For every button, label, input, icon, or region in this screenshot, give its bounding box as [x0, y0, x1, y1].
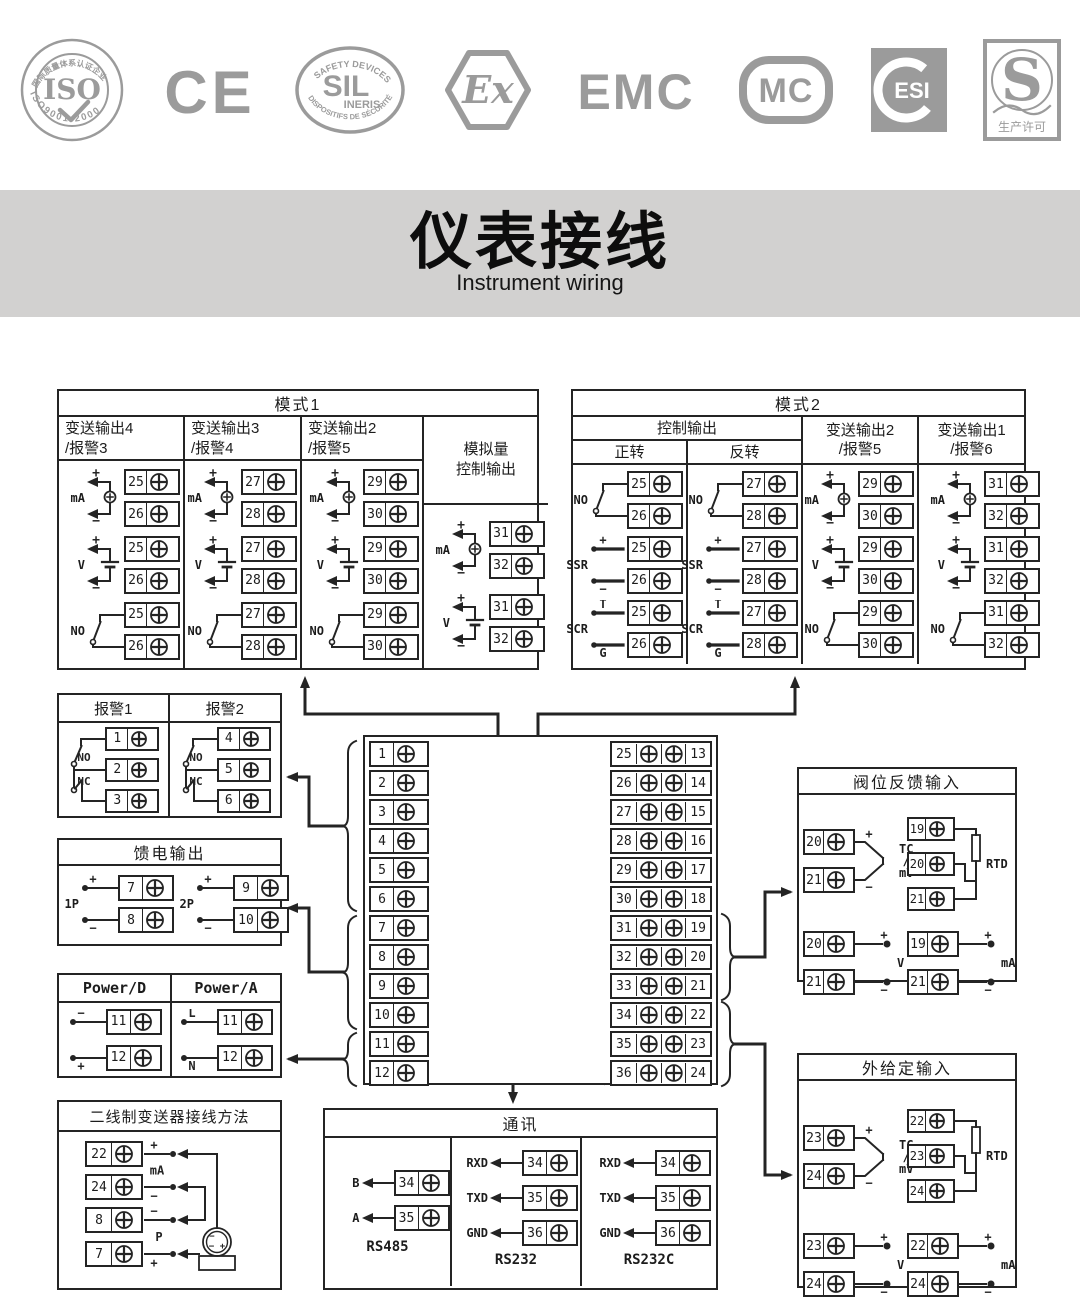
terminal: 21: [803, 969, 855, 995]
terminal: 30: [363, 568, 419, 594]
svg-text:生产许可: 生产许可: [998, 120, 1046, 134]
terminal-number: 32: [986, 505, 1007, 527]
terminal: 19: [907, 931, 959, 957]
mA-diagram: mA+−2930: [298, 469, 419, 527]
terminal: 21: [907, 887, 955, 911]
ma-label: mA: [298, 491, 324, 505]
v-label: V: [424, 616, 450, 630]
screw-terminal-icon: [928, 890, 946, 908]
screw-terminal-icon: [661, 860, 687, 880]
terminal-number: 25: [629, 538, 650, 560]
terminal-stack: 910: [233, 875, 289, 933]
twowire-title: 二线制变送器接线方法: [59, 1102, 280, 1132]
esi-logo-icon: ESI: [870, 45, 948, 135]
no-label: NO: [677, 493, 703, 507]
terminal-number: 31: [986, 538, 1007, 560]
terminal: 26: [124, 634, 180, 660]
terminal: 12: [106, 1045, 162, 1071]
rs485-label: RS485: [366, 1239, 408, 1255]
terminal-number: 23: [805, 1127, 824, 1149]
terminal-number: 1: [371, 743, 394, 765]
column-header: 模拟量 控制输出: [424, 417, 548, 505]
terminal-stack: 2526: [627, 536, 683, 594]
V-diagram: V+−3132: [919, 536, 1040, 594]
svg-text:−: −: [714, 582, 721, 594]
screw-terminal-icon: [266, 605, 286, 625]
lead-wiring-icon: +−: [80, 875, 118, 933]
no-label: NO: [793, 622, 819, 636]
svg-text:+: +: [331, 469, 339, 481]
screw-terminal-icon: [826, 1236, 846, 1256]
gnd-label: GND: [587, 1226, 621, 1240]
terminal-number: 7: [371, 917, 394, 939]
terminal-number: 31: [491, 596, 512, 618]
comm-title: 通讯: [325, 1110, 716, 1138]
terminal-stack: 456: [217, 727, 271, 813]
terminal: 29: [363, 536, 419, 562]
screw-terminal-icon: [661, 773, 687, 793]
screw-terminal-icon: [149, 472, 169, 492]
terminal: 5: [217, 758, 271, 782]
screw-terminal-icon: [826, 1166, 846, 1186]
feed-group: 2P+−910: [174, 875, 289, 933]
terminal: 3: [105, 789, 159, 813]
terminal-number: 24: [686, 1066, 710, 1081]
terminal-number: 2: [371, 772, 394, 794]
screw-terminal-icon: [130, 792, 148, 810]
svg-text:EMC: EMC: [577, 64, 694, 120]
svg-text:−: −: [209, 581, 217, 594]
terminal-block: 1234567891011122513261427152816291730183…: [363, 735, 718, 1085]
relay-no-nc-icon: NONC: [67, 726, 105, 814]
screw-terminal-icon: [636, 802, 661, 822]
terminal: 6: [369, 886, 429, 912]
SCR-diagram: SCRTG2728: [677, 600, 798, 658]
terminal-number: 17: [686, 863, 710, 878]
terminal: 5: [369, 857, 429, 883]
terminal: 30: [363, 634, 419, 660]
logo-ce: CE: [160, 53, 260, 127]
terminal: 29: [363, 469, 419, 495]
terminal: 11: [106, 1009, 162, 1035]
screw-terminal-icon: [1009, 635, 1029, 655]
left-arrow-icon: [621, 1186, 655, 1210]
screw-terminal-icon: [260, 910, 280, 930]
terminal: 20: [803, 931, 855, 957]
svg-text:−: −: [880, 983, 887, 995]
V-diagram: V+−3132: [424, 594, 545, 652]
terminal-number: 1: [107, 729, 128, 749]
terminal-number: 9: [371, 975, 394, 997]
screw-terminal-icon: [928, 1112, 946, 1130]
dot-input-group: 1921+−mA: [907, 931, 1015, 995]
terminal: 11: [217, 1009, 273, 1035]
terminal-number: 5: [371, 859, 394, 881]
terminal: 29: [858, 471, 914, 497]
screw-terminal-icon: [928, 1147, 946, 1165]
screw-terminal-icon: [130, 761, 148, 779]
svg-text:+: +: [865, 1125, 872, 1137]
valve-feedback-box: 阀位反馈输入 2021+−TC/mV192021RTD2021+−V1921+−…: [797, 767, 1017, 982]
terminal-number: 34: [657, 1152, 680, 1174]
terminal-row: 2513: [610, 741, 712, 767]
terminal: 26: [124, 501, 180, 527]
svg-text:+: +: [209, 469, 217, 481]
terminal: 6: [217, 789, 271, 813]
terminal-number: 13: [686, 747, 710, 762]
NO-wiring-icon: [704, 471, 742, 529]
terminal-row: 2715: [610, 799, 712, 825]
mA-diagram: mA+−3132: [919, 471, 1040, 529]
screw-terminal-icon: [661, 918, 687, 938]
power-box: Power/D Power/A −+1112 LN1112: [57, 973, 282, 1078]
logo-esi: ESI: [870, 45, 948, 135]
terminal: 12: [369, 1060, 429, 1086]
terminal-number: 21: [909, 971, 928, 993]
terminal: 21: [803, 867, 855, 893]
terminal-row: 3119: [610, 915, 712, 941]
terminal: 30: [858, 503, 914, 529]
page-title: 仪表接线: [410, 212, 670, 274]
terminal: 31: [489, 521, 545, 547]
screw-terminal-icon: [661, 1005, 687, 1025]
column-header: 正转: [573, 441, 688, 465]
terminal-number: 21: [805, 869, 824, 891]
left-arrow-icon: [488, 1186, 522, 1210]
terminal: 12: [217, 1045, 273, 1071]
terminal-number: 26: [126, 570, 147, 592]
screw-terminal-icon: [149, 637, 169, 657]
ex-logo-icon: Ex: [440, 40, 536, 140]
terminal-number: 12: [108, 1047, 131, 1069]
terminal-stack: 2021: [803, 931, 855, 995]
terminal: 27: [241, 469, 297, 495]
terminal-number: 29: [612, 863, 636, 878]
svg-text:N: N: [188, 1059, 195, 1071]
no-label: NO: [298, 624, 324, 638]
screw-terminal-icon: [260, 878, 280, 898]
terminal-number: 28: [612, 834, 636, 849]
terminal-number: 25: [126, 538, 147, 560]
terminal: 31: [984, 536, 1040, 562]
column-header: 变送输出4 /报警3: [59, 417, 183, 461]
svg-text:−: −: [865, 880, 872, 893]
screw-terminal-icon: [883, 474, 903, 494]
svg-text:INERIS: INERIS: [344, 99, 381, 111]
power-d-header: Power/D: [59, 975, 172, 1001]
terminal-row: 2614: [610, 770, 712, 796]
terminal: 27: [742, 536, 798, 562]
terminal: 1: [105, 727, 159, 751]
terminal-number: 15: [686, 805, 710, 820]
terminal-number: 30: [365, 570, 386, 592]
svg-text:G: G: [599, 646, 606, 658]
svg-text:+: +: [952, 471, 960, 483]
column-header: 变送输出1 /报警6: [919, 417, 1024, 465]
V-wiring-icon: +−: [86, 536, 124, 594]
svg-text:−: −: [150, 1189, 157, 1203]
terminal-number: 23: [805, 1235, 824, 1257]
left-arrow-icon: [621, 1221, 655, 1245]
screw-terminal-icon: [826, 1274, 846, 1294]
terminal-number: 35: [657, 1187, 680, 1209]
power-a-header: Power/A: [172, 975, 280, 1001]
screw-terminal-icon: [396, 918, 416, 938]
terminal: 2: [369, 770, 429, 796]
terminal: 28: [742, 568, 798, 594]
terminal-number: 12: [371, 1062, 394, 1084]
terminal: 35: [655, 1185, 711, 1211]
svg-text:NC: NC: [78, 775, 91, 788]
V-diagram: V+−2930: [298, 536, 419, 594]
screw-terminal-icon: [636, 947, 661, 967]
terminal-number: 21: [909, 889, 926, 909]
screw-terminal-icon: [767, 506, 787, 526]
screw-terminal-icon: [133, 1048, 153, 1068]
ssr-label: SSR: [562, 558, 588, 572]
mA-wiring-icon: +−: [203, 469, 241, 527]
svg-text:T: T: [599, 600, 606, 611]
terminal-number: 12: [219, 1047, 242, 1069]
terminal: 8: [118, 907, 174, 933]
terminal: 30: [858, 632, 914, 658]
screw-terminal-icon: [652, 603, 672, 623]
terminal: 25: [124, 536, 180, 562]
alarm-diagram: NONC456: [179, 726, 271, 814]
lead-wiring-icon: LN: [179, 1009, 217, 1071]
screw-terminal-icon: [826, 1128, 846, 1148]
terminal-number: 24: [909, 1181, 926, 1201]
screw-terminal-icon: [930, 1236, 950, 1256]
NO-diagram: NO2526: [562, 471, 683, 529]
comm-row: A35: [326, 1205, 450, 1231]
terminal-stack: 3132: [489, 521, 545, 579]
signal-wiring-icon: +−: [959, 931, 1001, 995]
comm-row: TXD35: [454, 1185, 578, 1211]
svg-text:+: +: [714, 536, 721, 547]
terminal-stack: 2526: [124, 536, 180, 594]
svg-text:CE: CE: [164, 59, 255, 126]
lead-wiring-icon: −+: [68, 1009, 106, 1071]
logo-ex: Ex: [440, 40, 536, 140]
terminal-row: 3321: [610, 973, 712, 999]
screw-terminal-icon: [767, 603, 787, 623]
ssr-label: SSR: [677, 558, 703, 572]
terminal: 35: [394, 1205, 450, 1231]
terminal-number: 18: [686, 892, 710, 907]
terminal-row: 3422: [610, 1002, 712, 1028]
SSR-wiring-icon: +−: [589, 536, 627, 594]
terminal-number: 32: [612, 950, 636, 965]
terminal-number: 5: [219, 760, 240, 780]
terminal-number: 27: [744, 473, 765, 495]
ma-label: mA: [1001, 1259, 1015, 1271]
lead-wiring-icon: +−: [195, 875, 233, 933]
screw-terminal-icon: [767, 539, 787, 559]
terminal: 27: [241, 536, 297, 562]
terminal-number: 30: [860, 505, 881, 527]
terminal: 24: [803, 1271, 855, 1297]
mA-wiring-icon: +−: [820, 471, 858, 529]
terminal: 26: [627, 503, 683, 529]
external-setpoint-box: 外给定输入 2324+−TC/mV222324RTD2324+−V2224+−m…: [797, 1053, 1017, 1288]
svg-text:−: −: [331, 514, 339, 527]
terminal-stack: 1112: [217, 1009, 273, 1071]
screw-terminal-icon: [133, 1012, 153, 1032]
NO-wiring-icon: [86, 602, 124, 660]
terminal-number: 6: [371, 888, 394, 910]
svg-text:+: +: [880, 1233, 887, 1244]
mode1-column: 变送输出4 /报警3 mA+−2526V+−2526NO2526: [59, 417, 185, 668]
screw-terminal-icon: [514, 556, 534, 576]
terminal-number: 21: [805, 971, 824, 993]
terminal-number: 25: [629, 473, 650, 495]
alarm2-header: 报警2: [170, 695, 281, 721]
screw-terminal-icon: [388, 605, 408, 625]
screw-terminal-icon: [682, 1153, 702, 1173]
terminal: 34: [522, 1150, 578, 1176]
V-diagram: V+−2930: [793, 536, 914, 594]
screw-terminal-icon: [266, 504, 286, 524]
screw-terminal-icon: [826, 870, 846, 890]
terminal-number: 24: [805, 1165, 824, 1187]
terminal-number: 28: [744, 634, 765, 656]
terminal-stack: 2728: [241, 602, 297, 660]
s-license-logo-icon: S生产许可: [982, 38, 1062, 142]
comm-row: RXD34: [587, 1150, 711, 1176]
screw-terminal-icon: [149, 571, 169, 591]
terminal-number: 26: [629, 570, 650, 592]
left-arrow-icon: [360, 1171, 394, 1195]
rtd-input-group: 222324RTD: [907, 1109, 1008, 1203]
terminal-number: 27: [243, 604, 264, 626]
rtd-wiring-icon: [955, 1109, 985, 1203]
twowire-wiring: +−−+mAP−− +: [59, 1132, 280, 1288]
rtd-wiring-icon: [955, 817, 985, 911]
screw-terminal-icon: [396, 773, 416, 793]
terminal-stack: 1921: [907, 931, 959, 995]
terminal-stack: 78: [118, 875, 174, 933]
screw-terminal-icon: [396, 976, 416, 996]
screw-terminal-icon: [767, 571, 787, 591]
screw-terminal-icon: [396, 1005, 416, 1025]
svg-text:+: +: [209, 536, 217, 548]
terminal-row: 2917: [610, 857, 712, 883]
screw-terminal-icon: [388, 571, 408, 591]
svg-text:+: +: [204, 875, 211, 886]
svg-text:−: −: [92, 581, 100, 594]
svg-text:−: −: [457, 639, 465, 652]
svg-text:NC: NC: [189, 775, 202, 788]
screw-terminal-icon: [636, 831, 661, 851]
V-wiring-icon: +−: [325, 536, 363, 594]
svg-text:+: +: [984, 931, 991, 942]
terminal: 30: [363, 501, 419, 527]
screw-terminal-icon: [661, 802, 687, 822]
mA-diagram: mA+−3132: [424, 521, 545, 579]
terminal: 32: [489, 553, 545, 579]
V-wiring-icon: +−: [451, 594, 489, 652]
no-label: NO: [919, 622, 945, 636]
terminal-number: 24: [909, 1273, 928, 1295]
rtd-input-group: 192021RTD: [907, 817, 1008, 911]
screw-terminal-icon: [661, 831, 687, 851]
screw-terminal-icon: [1009, 474, 1029, 494]
screw-terminal-icon: [514, 524, 534, 544]
terminal-number: 29: [860, 473, 881, 495]
screw-terminal-icon: [266, 539, 286, 559]
mode1-column: 模拟量 控制输出 mA+−3132V+−3132: [424, 417, 548, 668]
terminal-number: 6: [219, 791, 240, 811]
alarm1-header: 报警1: [59, 695, 170, 721]
terminal-number: 11: [108, 1011, 131, 1033]
NO-wiring-icon: [820, 600, 858, 658]
tc-mv-wiring-icon: +−: [855, 829, 897, 893]
rxd-label: RXD: [587, 1156, 621, 1170]
terminal: 10: [233, 907, 289, 933]
NO-wiring-icon: [589, 471, 627, 529]
terminal: 36: [655, 1220, 711, 1246]
terminal-number: 34: [396, 1172, 419, 1194]
terminal-number: 27: [243, 471, 264, 493]
terminal-number: 20: [686, 950, 710, 965]
terminal-number: 20: [805, 831, 824, 853]
screw-terminal-icon: [242, 792, 260, 810]
title-band: 仪表接线 Instrument wiring: [0, 190, 1080, 317]
v-label: V: [897, 957, 904, 969]
terminal: 25: [124, 469, 180, 495]
left-arrow-icon: [360, 1206, 394, 1230]
terminal-number: 36: [657, 1222, 680, 1244]
column-header: 变送输出2 /报警5: [302, 417, 422, 461]
left-arrow-icon: [488, 1151, 522, 1175]
mA-diagram: mA+−2930: [793, 471, 914, 529]
terminal-stack: 192021: [907, 817, 955, 911]
terminal-number: 10: [235, 909, 258, 931]
terminal-number: 30: [860, 570, 881, 592]
external-title: 外给定输入: [799, 1055, 1015, 1081]
terminal-stack: 2324: [803, 1233, 855, 1297]
screw-terminal-icon: [652, 506, 672, 526]
terminal-number: 7: [120, 877, 143, 899]
screw-terminal-icon: [883, 539, 903, 559]
mode1-box: 模式1 变送输出4 /报警3 mA+−2526V+−2526NO2526 变送输…: [57, 389, 539, 670]
svg-text:NO: NO: [189, 751, 203, 764]
terminal-number: 27: [243, 538, 264, 560]
column-header: 反转: [688, 441, 803, 465]
screw-terminal-icon: [1009, 539, 1029, 559]
terminal: 25: [627, 536, 683, 562]
terminal-number: 30: [860, 634, 881, 656]
rtd-label: RTD: [986, 858, 1008, 870]
terminal-number: 3: [107, 791, 128, 811]
terminal-number: 22: [909, 1235, 928, 1257]
screw-terminal-icon: [145, 878, 165, 898]
terminal-number: 25: [126, 604, 147, 626]
svg-text:+: +: [150, 1138, 157, 1152]
svg-text:+: +: [952, 536, 960, 548]
b-label: B: [326, 1176, 360, 1190]
terminal: 29: [363, 602, 419, 628]
svg-text:−: −: [331, 581, 339, 594]
terminal-number: 4: [219, 729, 240, 749]
comm-row: GND36: [587, 1220, 711, 1246]
screw-terminal-icon: [661, 1034, 687, 1054]
svg-text:−: −: [89, 921, 96, 933]
comm-row: RXD34: [454, 1150, 578, 1176]
terminal-number: 30: [612, 892, 636, 907]
terminal-number: 25: [126, 471, 147, 493]
